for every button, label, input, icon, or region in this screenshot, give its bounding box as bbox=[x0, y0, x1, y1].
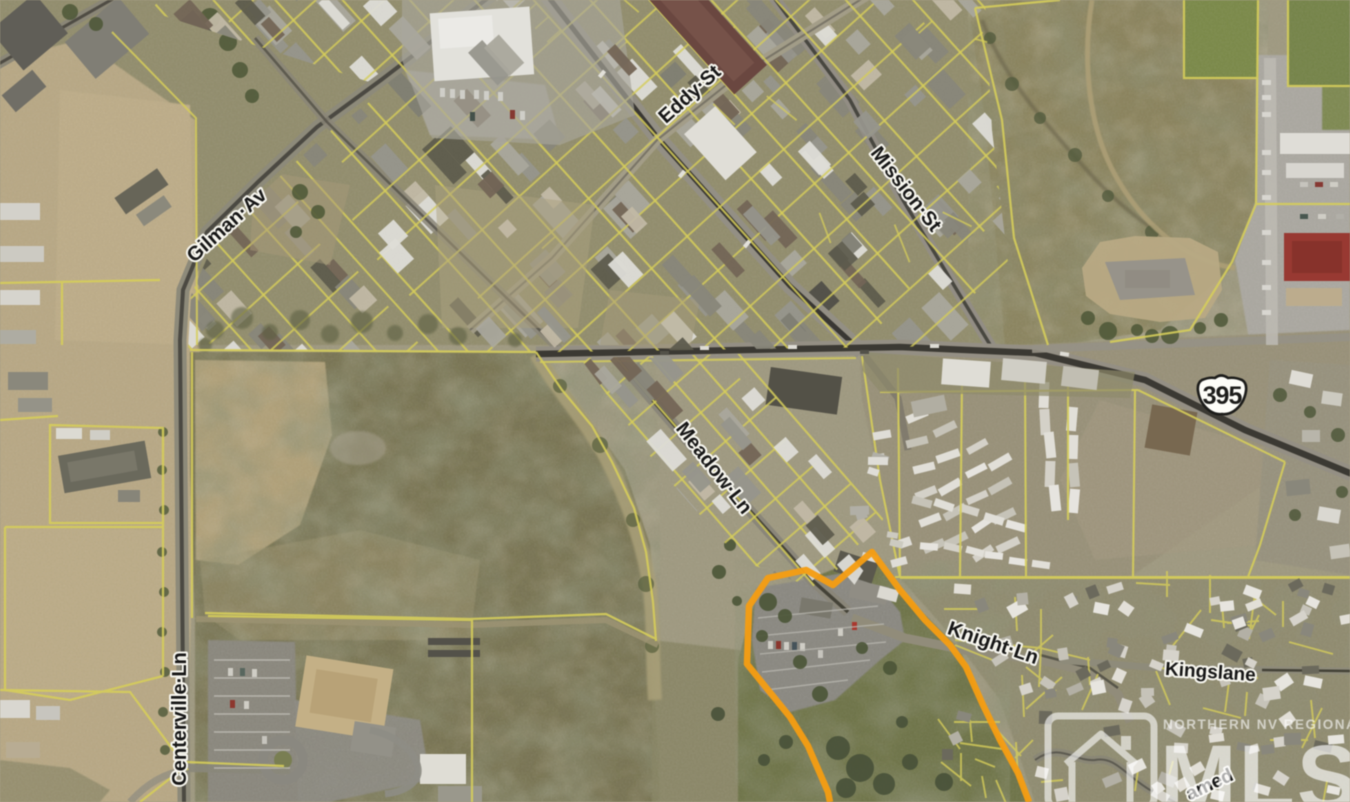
svg-text:395: 395 bbox=[1203, 382, 1243, 410]
svg-text:NORTHERN NV REGIONAL: NORTHERN NV REGIONAL bbox=[1163, 717, 1350, 732]
svg-text:MLS: MLS bbox=[1160, 727, 1350, 802]
svg-text:Centerville·Ln: Centerville·Ln bbox=[169, 652, 191, 785]
